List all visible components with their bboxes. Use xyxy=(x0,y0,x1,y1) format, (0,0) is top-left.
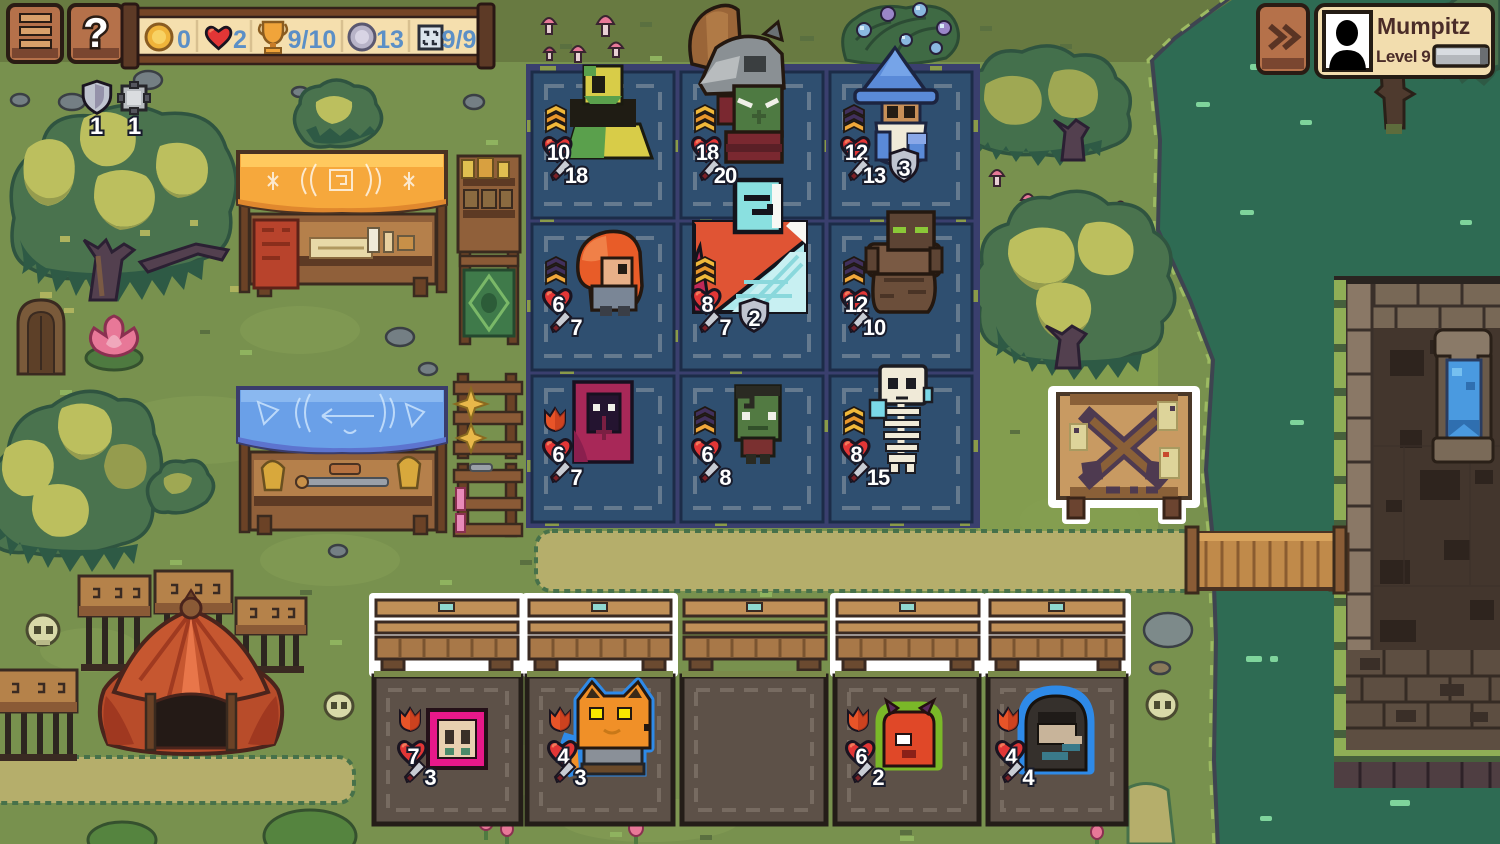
svg-text:2: 2 xyxy=(233,26,247,54)
svg-text:9/9: 9/9 xyxy=(442,26,477,54)
svg-text:1: 1 xyxy=(128,113,141,140)
svg-text:Mumpitz: Mumpitz xyxy=(1377,13,1470,39)
svg-text:Level 9: Level 9 xyxy=(1376,47,1430,66)
svg-text:7: 7 xyxy=(570,465,582,490)
svg-text:15: 15 xyxy=(867,465,890,490)
svg-text:3: 3 xyxy=(898,156,910,181)
svg-text:3: 3 xyxy=(574,765,586,790)
svg-text:13: 13 xyxy=(376,26,404,54)
svg-text:?: ? xyxy=(83,9,109,56)
svg-text:10: 10 xyxy=(863,315,886,340)
svg-text:20: 20 xyxy=(714,163,737,188)
svg-text:2: 2 xyxy=(748,306,760,331)
svg-text:3: 3 xyxy=(424,765,436,790)
svg-text:8: 8 xyxy=(719,465,731,490)
svg-text:9/10: 9/10 xyxy=(288,26,337,54)
svg-text:7: 7 xyxy=(570,315,582,340)
svg-text:18: 18 xyxy=(565,163,588,188)
svg-text:4: 4 xyxy=(1022,765,1035,790)
svg-text:7: 7 xyxy=(719,315,731,340)
svg-text:1: 1 xyxy=(90,113,103,140)
svg-text:2: 2 xyxy=(872,765,884,790)
svg-text:0: 0 xyxy=(177,26,191,54)
svg-text:13: 13 xyxy=(863,163,886,188)
